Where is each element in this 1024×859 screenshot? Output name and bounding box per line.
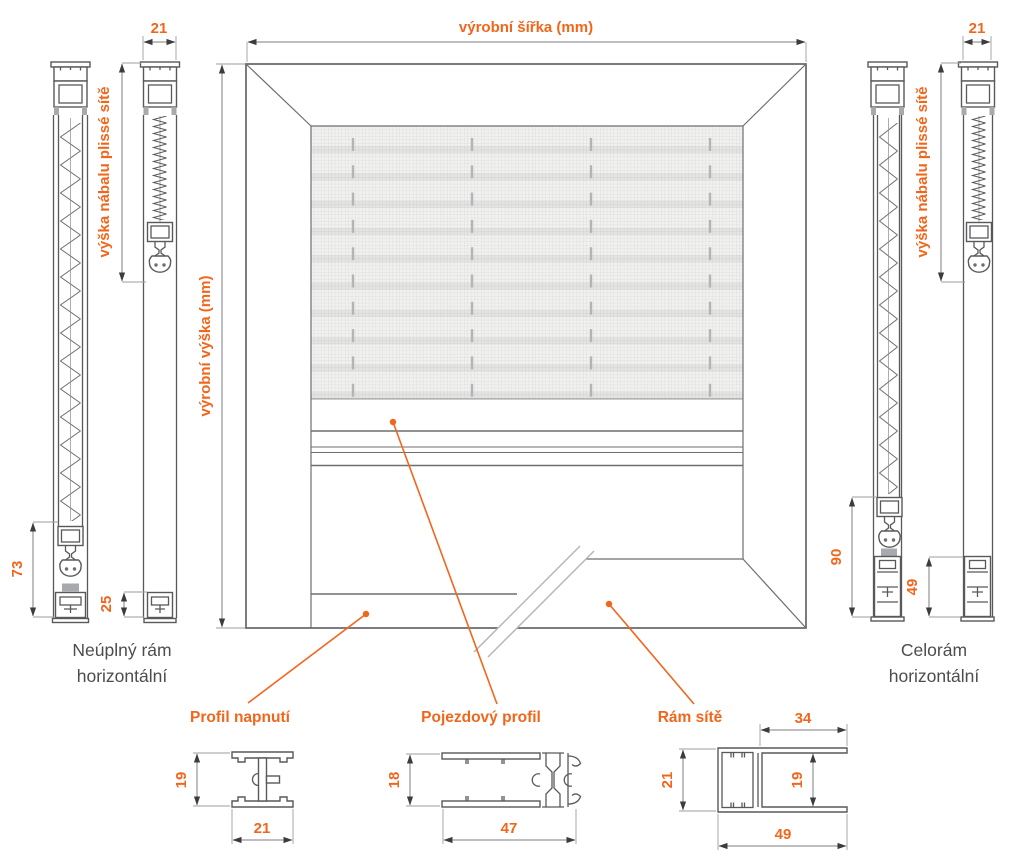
top-rail-section <box>141 62 180 115</box>
mesh-frame-label: Rám sítě <box>658 709 723 726</box>
travel-profile-label: Pojezdový profil <box>421 709 541 726</box>
callout-mesh-frame <box>606 601 694 704</box>
technical-drawing-page: výrobní šířka (mm) výrobní výška (mm) <box>0 0 1024 859</box>
dim-value: 21 <box>254 820 271 837</box>
return-spring <box>152 116 168 220</box>
dimension-tension-19: 19 <box>173 753 230 806</box>
top-rail-section <box>868 62 907 115</box>
dim-value: 25 <box>98 596 115 613</box>
right-section-title-line2: horizontální <box>889 666 980 686</box>
pleated-screen-diagram: výrobní šířka (mm) výrobní výška (mm) <box>0 0 1024 859</box>
dimension-travel-18: 18 <box>386 754 440 806</box>
dim-value: 19 <box>789 772 806 789</box>
cross-section-travel-profile: Pojezdový profil 18 47 <box>386 709 581 844</box>
dim-value: 90 <box>828 549 845 566</box>
wrap-height-label: výška nábalu plissé sítě <box>96 87 113 258</box>
cross-section-tension-profile: Profil napnutí 19 21 <box>173 709 293 844</box>
callout-travel-profile <box>390 419 497 704</box>
dimension-right-49: 49 <box>904 557 963 617</box>
dimension-right-wrap-height: výška nábalu plissé sítě <box>914 63 965 282</box>
section-full-frame <box>868 62 907 621</box>
dim-value: 49 <box>775 826 792 843</box>
dimension-left-wrap-height: výška nábalu plissé sítě <box>96 63 146 282</box>
dim-value: 73 <box>9 561 26 578</box>
dim-value: 21 <box>659 772 676 789</box>
travel-bar-band <box>311 431 743 466</box>
dimension-meshframe-49: 49 <box>718 814 847 850</box>
dim-value: 19 <box>173 772 190 789</box>
right-section-title-line1: Celorám <box>901 640 967 660</box>
wrap-height-label: výška nábalu plissé sítě <box>914 87 931 258</box>
travel-bar-section <box>877 498 902 548</box>
section-incomplete-frame <box>51 62 90 623</box>
frame-front-view: výrobní šířka (mm) výrobní výška (mm) <box>197 19 806 657</box>
dim-value: 34 <box>795 710 812 727</box>
cross-section-mesh-frame: Rám sítě 34 21 19 49 <box>658 709 847 850</box>
callout-tension-profile <box>248 611 369 703</box>
top-rail-section <box>959 62 998 115</box>
callout-leaders <box>248 419 694 704</box>
dimension-travel-47: 47 <box>443 809 576 844</box>
dim-value: 21 <box>151 20 168 37</box>
mesh-frame-drawing <box>718 748 847 812</box>
tension-rail-section <box>53 593 89 623</box>
break-line-symbol <box>474 546 594 657</box>
dimension-left-73: 73 <box>9 522 58 617</box>
bottom-profile-section <box>144 593 176 623</box>
top-rail-section <box>51 62 90 115</box>
dimension-right-21: 21 <box>963 20 991 60</box>
dimension-meshframe-34: 34 <box>760 710 847 746</box>
dimension-tension-21: 21 <box>232 809 293 844</box>
dimension-meshframe-19: 19 <box>789 754 813 806</box>
dimension-left-21: 21 <box>143 20 176 60</box>
pleated-mesh-area <box>311 126 743 399</box>
dimension-meshframe-21: 21 <box>659 749 716 811</box>
dimension-right-90: 90 <box>828 497 876 617</box>
dim-value: 21 <box>969 20 986 37</box>
dimension-left-25: 25 <box>98 592 147 617</box>
right-horizontal-section: 21 výška nábalu plissé sítě 90 49 Celorá… <box>828 20 998 686</box>
dimension-production-height: výrobní výška (mm) <box>197 64 245 628</box>
left-section-title-line1: Neúplný rám <box>72 640 171 660</box>
travel-bar-section <box>148 223 173 273</box>
section-spring-side <box>141 62 180 623</box>
travel-profile-drawing <box>442 753 581 807</box>
tension-profile-label: Profil napnutí <box>190 709 291 726</box>
production-height-label: výrobní výška (mm) <box>197 276 214 417</box>
bottom-rail-section <box>871 557 904 622</box>
dim-value: 47 <box>501 820 518 837</box>
production-width-label: výrobní šířka (mm) <box>459 19 593 36</box>
travel-bar-section <box>58 527 83 577</box>
section-spring-side <box>959 62 998 621</box>
left-horizontal-section: 21 výška nábalu plissé sítě 73 25 Neúpln… <box>9 20 180 686</box>
left-section-title-line2: horizontální <box>77 666 168 686</box>
dim-value: 49 <box>904 579 921 596</box>
return-spring <box>971 116 987 220</box>
bottom-rail-section <box>961 557 994 622</box>
travel-bar-section <box>967 223 992 273</box>
dimension-production-width: výrobní šířka (mm) <box>247 19 806 62</box>
dim-value: 18 <box>386 772 403 789</box>
tension-profile-drawing <box>232 752 293 807</box>
